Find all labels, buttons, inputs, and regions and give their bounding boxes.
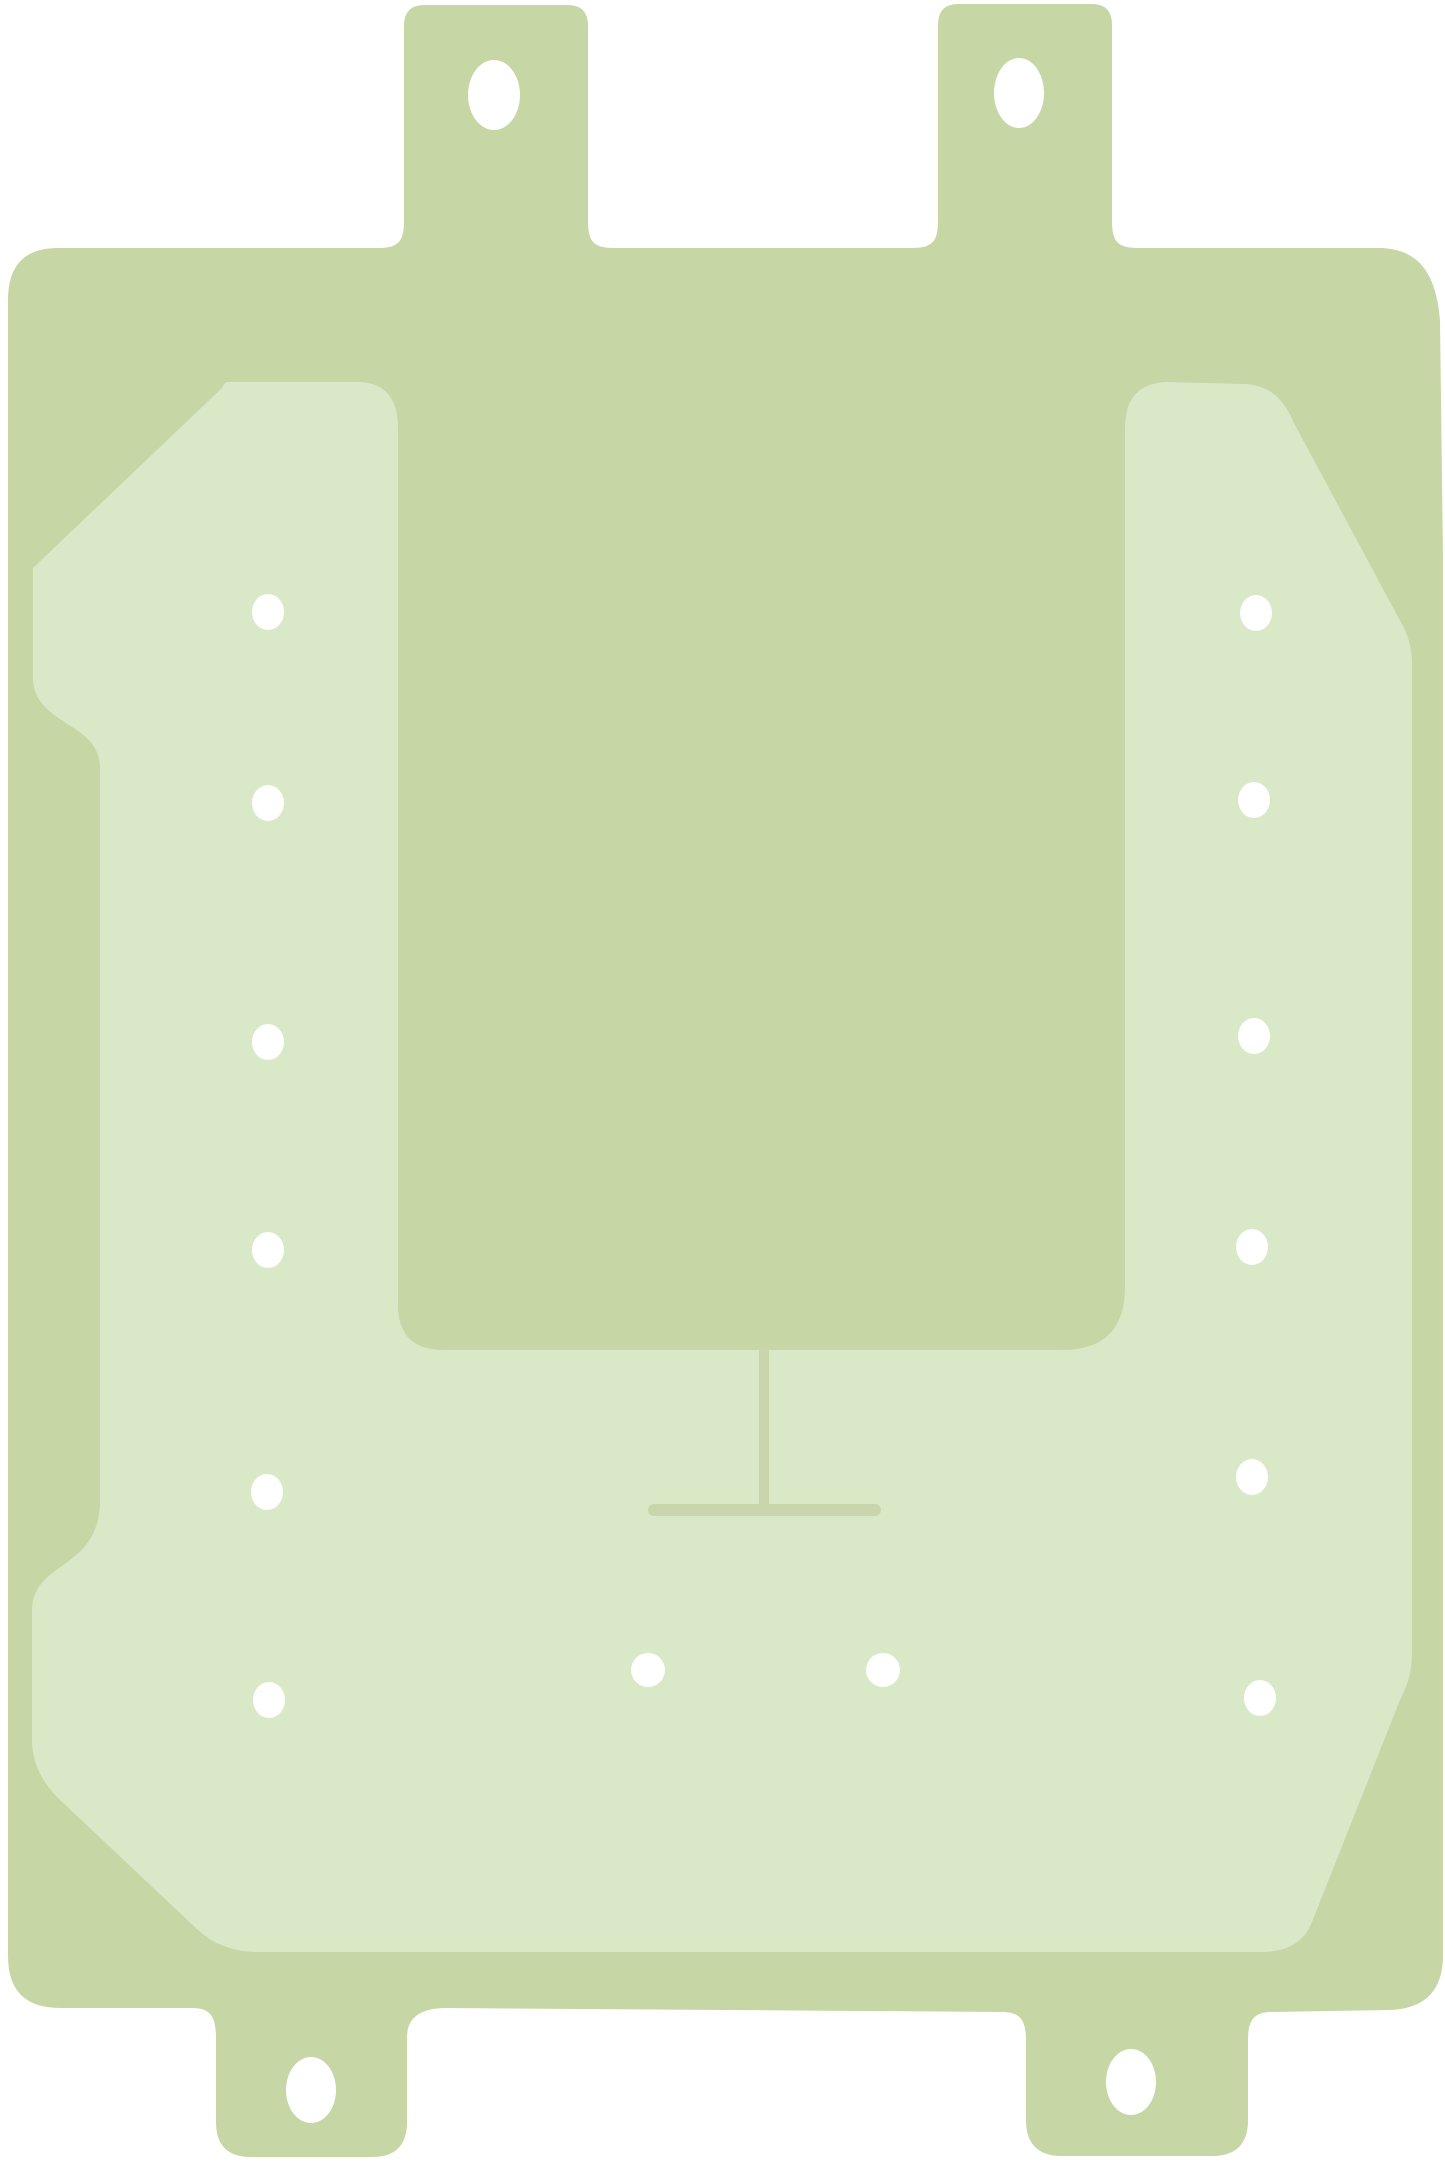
adhesive-sheet-graphic — [0, 0, 1445, 2161]
left-side-hole — [252, 1232, 284, 1268]
right-side-hole — [1244, 1680, 1276, 1716]
right-side-hole — [1236, 1229, 1268, 1265]
left-side-hole — [252, 594, 284, 630]
left-side-hole — [253, 1682, 285, 1718]
right-side-hole — [1236, 1459, 1268, 1495]
product-image-canvas — [0, 0, 1445, 2161]
right-side-hole — [1240, 595, 1272, 631]
tab-hole — [468, 60, 520, 130]
right-side-hole — [1238, 782, 1270, 818]
bottom-pair-hole — [866, 1653, 900, 1687]
left-side-hole — [251, 1474, 283, 1510]
right-side-hole — [1238, 1018, 1270, 1054]
bottom-pair-hole — [631, 1653, 665, 1687]
tab-hole — [286, 2057, 336, 2123]
tab-hole — [1106, 2049, 1156, 2115]
tab-hole — [994, 58, 1044, 128]
left-side-hole — [252, 1024, 284, 1060]
left-side-hole — [252, 785, 284, 821]
